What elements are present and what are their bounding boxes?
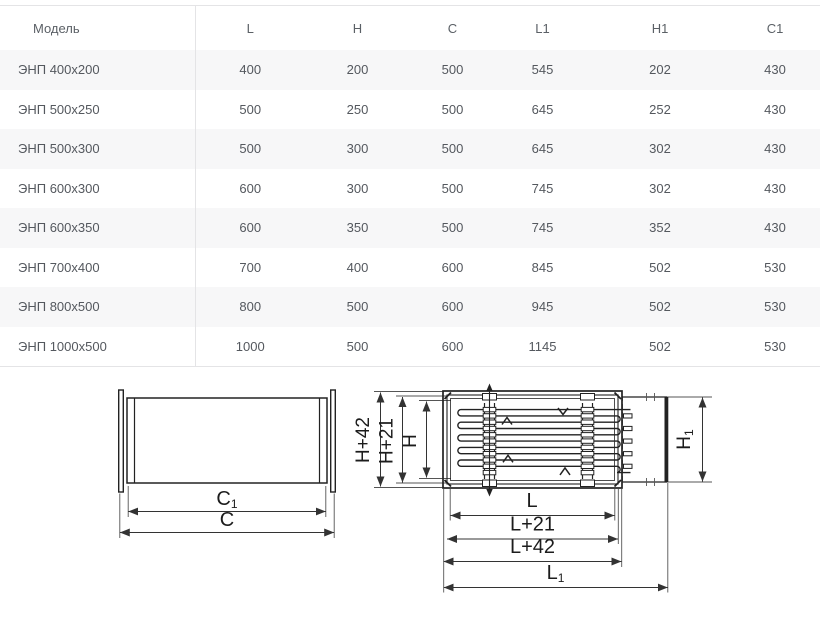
table-row: ЭНП 500x300500300500645302430 — [0, 129, 820, 169]
cell-l1: 745 — [495, 169, 590, 209]
dim-label-l21: L+21 — [510, 514, 555, 536]
dim-label-h21: H+21 — [377, 418, 398, 464]
cell-l: 1000 — [195, 327, 305, 367]
cell-model: ЭНП 600x300 — [0, 169, 195, 209]
cell-c: 600 — [410, 248, 495, 288]
technical-drawings: C1 C H+42 H+21 H — [0, 375, 820, 622]
cell-model: ЭНП 600x350 — [0, 208, 195, 248]
cell-h1: 302 — [590, 169, 730, 209]
cell-l1: 745 — [495, 208, 590, 248]
cell-h: 200 — [305, 50, 410, 90]
cell-l1: 1145 — [495, 327, 590, 367]
column-header-h1: H1 — [590, 6, 730, 51]
cell-c: 600 — [410, 287, 495, 327]
column-header-model: Модель — [0, 6, 195, 51]
dim-label-l42: L+42 — [510, 536, 555, 558]
table-row: ЭНП 1000x50010005006001145502530 — [0, 327, 820, 367]
cell-model: ЭНП 700x400 — [0, 248, 195, 288]
cell-h1: 502 — [590, 287, 730, 327]
corner-marks — [445, 393, 622, 487]
cell-c: 500 — [410, 169, 495, 209]
table-body: ЭНП 400x200400200500545202430ЭНП 500x250… — [0, 50, 820, 367]
cell-l: 500 — [195, 90, 305, 130]
cell-h1: 252 — [590, 90, 730, 130]
cell-model: ЭНП 800x500 — [0, 287, 195, 327]
cell-c1: 530 — [730, 287, 820, 327]
drawings-svg: C1 C H+42 H+21 H — [0, 375, 820, 622]
cell-h: 350 — [305, 208, 410, 248]
cell-model: ЭНП 500x250 — [0, 90, 195, 130]
cell-model: ЭНП 500x300 — [0, 129, 195, 169]
dim-label-h42: H+42 — [353, 417, 374, 463]
cell-l1: 845 — [495, 248, 590, 288]
page: МодельLHCL1H1C1 ЭНП 400x2004002005005452… — [0, 0, 820, 622]
cell-h: 250 — [305, 90, 410, 130]
cell-l: 700 — [195, 248, 305, 288]
cell-h1: 352 — [590, 208, 730, 248]
table-row: ЭНП 400x200400200500545202430 — [0, 50, 820, 90]
cell-l: 800 — [195, 287, 305, 327]
cell-c1: 430 — [730, 50, 820, 90]
dim-label-c: C — [220, 509, 234, 531]
duct-side-view-diagram: C1 C — [119, 390, 336, 538]
cell-c1: 530 — [730, 327, 820, 367]
dim-label-c1: C1 — [216, 488, 237, 511]
table-row: ЭНП 500x250500250500645252430 — [0, 90, 820, 130]
cell-h1: 202 — [590, 50, 730, 90]
cell-c1: 430 — [730, 208, 820, 248]
cell-model: ЭНП 400x200 — [0, 50, 195, 90]
cell-l: 400 — [195, 50, 305, 90]
cell-c1: 430 — [730, 169, 820, 209]
cell-l: 600 — [195, 169, 305, 209]
cell-h1: 502 — [590, 327, 730, 367]
cell-c: 500 — [410, 90, 495, 130]
heater-frame — [443, 391, 622, 488]
column-header-c1: C1 — [730, 6, 820, 51]
left-support-bracket — [483, 384, 497, 497]
column-header-c: C — [410, 6, 495, 51]
casing-extension — [622, 393, 712, 486]
table-row: ЭНП 800x500800500600945502530 — [0, 287, 820, 327]
cell-l1: 945 — [495, 287, 590, 327]
cell-h: 300 — [305, 129, 410, 169]
table-row: ЭНП 600x300600300500745302430 — [0, 169, 820, 209]
dim-label-h: H — [400, 434, 421, 448]
dim-label-h1: H1 — [674, 429, 696, 450]
cell-c1: 430 — [730, 129, 820, 169]
cell-c1: 430 — [730, 90, 820, 130]
dim-label-l: L — [526, 490, 537, 512]
table-row: ЭНП 700x400700400600845502530 — [0, 248, 820, 288]
cell-h: 500 — [305, 287, 410, 327]
cell-c: 600 — [410, 327, 495, 367]
left-flange — [119, 390, 124, 492]
column-header-l1: L1 — [495, 6, 590, 51]
dimensions-table: МодельLHCL1H1C1 ЭНП 400x2004002005005452… — [0, 5, 820, 367]
duct-body — [127, 398, 327, 483]
cell-l1: 545 — [495, 50, 590, 90]
cell-l1: 645 — [495, 90, 590, 130]
column-header-l: L — [195, 6, 305, 51]
table-row: ЭНП 600x350600350500745352430 — [0, 208, 820, 248]
cell-l1: 645 — [495, 129, 590, 169]
cell-h1: 502 — [590, 248, 730, 288]
cell-h1: 302 — [590, 129, 730, 169]
right-flange — [331, 390, 336, 492]
cell-l: 500 — [195, 129, 305, 169]
column-header-h: H — [305, 6, 410, 51]
cell-model: ЭНП 1000x500 — [0, 327, 195, 367]
cell-h: 400 — [305, 248, 410, 288]
cell-h: 300 — [305, 169, 410, 209]
cell-c: 500 — [410, 50, 495, 90]
right-support-bracket — [581, 394, 595, 487]
cell-c: 500 — [410, 208, 495, 248]
cell-l: 600 — [195, 208, 305, 248]
dim-label-l1: L1 — [547, 562, 565, 585]
cell-c1: 530 — [730, 248, 820, 288]
cell-c: 500 — [410, 129, 495, 169]
table-header: МодельLHCL1H1C1 — [0, 6, 820, 51]
cell-h: 500 — [305, 327, 410, 367]
heater-top-view-diagram: H+42 H+21 H — [353, 384, 712, 593]
